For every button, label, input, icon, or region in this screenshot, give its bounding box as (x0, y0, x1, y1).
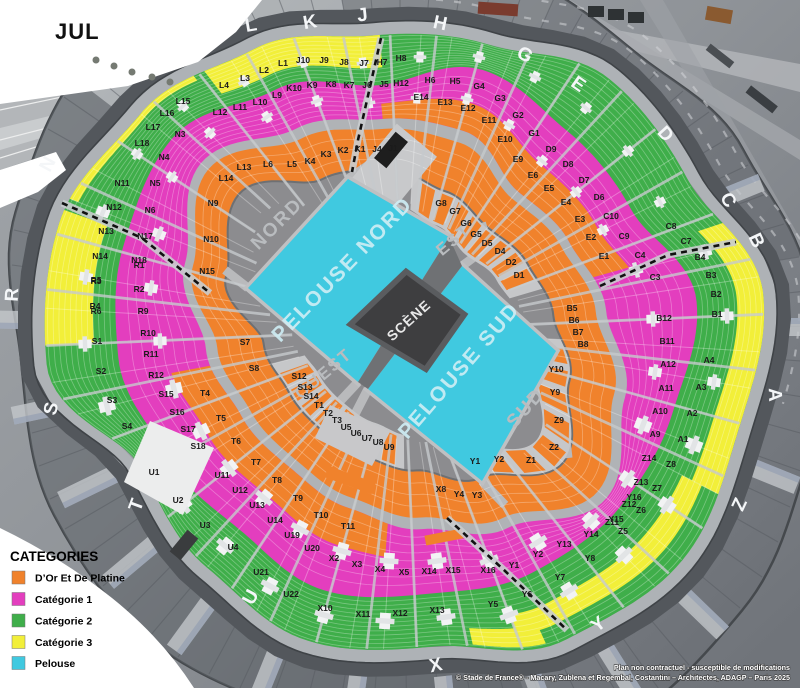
svg-text:L5: L5 (287, 159, 297, 169)
svg-text:N5: N5 (150, 178, 161, 188)
svg-text:A12: A12 (660, 359, 676, 369)
svg-text:A10: A10 (652, 406, 668, 416)
svg-text:R12: R12 (148, 370, 164, 380)
svg-text:T11: T11 (341, 521, 355, 531)
svg-text:U8: U8 (373, 437, 384, 447)
svg-text:Y1: Y1 (509, 560, 520, 570)
svg-text:B8: B8 (578, 339, 589, 349)
svg-text:E6: E6 (528, 170, 539, 180)
svg-text:L10: L10 (253, 97, 268, 107)
svg-text:H6: H6 (425, 75, 436, 85)
svg-text:X11: X11 (356, 609, 371, 619)
svg-text:CATEGORIES: CATEGORIES (10, 549, 98, 564)
svg-text:U9: U9 (384, 442, 395, 452)
svg-text:L13: L13 (237, 162, 252, 172)
svg-text:Pelouse: Pelouse (35, 658, 75, 670)
svg-text:E9: E9 (513, 154, 524, 164)
svg-text:N4: N4 (159, 152, 170, 162)
svg-text:X15: X15 (445, 565, 460, 575)
svg-text:N14: N14 (92, 251, 108, 261)
svg-text:S7: S7 (240, 337, 251, 347)
svg-text:A11: A11 (658, 383, 673, 393)
svg-text:L2: L2 (259, 65, 269, 75)
svg-text:B1: B1 (712, 309, 723, 319)
svg-text:Catégorie 2: Catégorie 2 (35, 616, 92, 628)
svg-text:E13: E13 (437, 97, 452, 107)
svg-text:J5: J5 (379, 79, 389, 89)
svg-text:L18: L18 (135, 138, 150, 148)
svg-text:G1: G1 (528, 128, 540, 138)
svg-text:T8: T8 (272, 475, 282, 485)
svg-text:Catégorie 1: Catégorie 1 (35, 594, 92, 606)
svg-text:E5: E5 (544, 183, 555, 193)
svg-text:E11: E11 (482, 115, 497, 125)
svg-text:S3: S3 (107, 395, 118, 405)
svg-text:JUL: JUL (55, 19, 100, 44)
svg-text:D2: D2 (506, 257, 517, 267)
svg-text:L3: L3 (240, 73, 250, 83)
svg-text:U21: U21 (253, 567, 269, 577)
svg-text:D6: D6 (594, 192, 605, 202)
svg-text:Y14: Y14 (583, 529, 598, 539)
svg-text:N17: N17 (137, 231, 153, 241)
svg-text:Y9: Y9 (550, 387, 561, 397)
svg-text:G2: G2 (512, 110, 524, 120)
svg-text:K3: K3 (321, 149, 332, 159)
svg-text:U14: U14 (267, 515, 283, 525)
svg-text:L9: L9 (272, 90, 282, 100)
svg-text:U12: U12 (232, 485, 248, 495)
svg-text:T4: T4 (200, 388, 210, 398)
svg-text:E3: E3 (575, 214, 586, 224)
svg-text:N11: N11 (114, 178, 129, 188)
svg-text:E14: E14 (413, 92, 428, 102)
svg-text:G3: G3 (494, 93, 506, 103)
svg-text:L14: L14 (219, 173, 234, 183)
svg-text:J8: J8 (339, 57, 349, 67)
svg-text:N12: N12 (106, 202, 122, 212)
svg-text:X2: X2 (329, 553, 340, 563)
svg-text:G6: G6 (460, 218, 472, 228)
svg-text:B2: B2 (711, 289, 722, 299)
svg-text:R2: R2 (134, 284, 145, 294)
svg-text:D7: D7 (579, 175, 590, 185)
svg-text:S2: S2 (96, 366, 107, 376)
svg-text:N15: N15 (199, 266, 215, 276)
svg-text:B5: B5 (567, 303, 578, 313)
svg-text:J9: J9 (319, 55, 329, 65)
svg-text:A4: A4 (704, 355, 715, 365)
svg-text:Y1: Y1 (470, 456, 481, 466)
svg-text:T7: T7 (251, 457, 261, 467)
svg-text:G5: G5 (470, 229, 482, 239)
svg-text:N13: N13 (98, 226, 114, 236)
svg-text:© Stade de France® - Macary, Z: © Stade de France® - Macary, Zublena et … (456, 673, 790, 682)
svg-text:E2: E2 (586, 232, 597, 242)
svg-text:K1: K1 (355, 144, 366, 154)
svg-text:G4: G4 (473, 81, 485, 91)
svg-text:Z5: Z5 (618, 526, 628, 536)
svg-text:D1: D1 (514, 270, 525, 280)
svg-text:Y4: Y4 (454, 489, 465, 499)
svg-text:K10: K10 (286, 83, 302, 93)
svg-text:Z14: Z14 (642, 453, 657, 463)
svg-text:D9: D9 (546, 144, 557, 154)
svg-text:Z7: Z7 (652, 483, 662, 493)
svg-text:U20: U20 (304, 543, 320, 553)
svg-text:D8: D8 (563, 159, 574, 169)
svg-text:A1: A1 (678, 434, 689, 444)
svg-text:L1: L1 (278, 58, 288, 68)
svg-text:X16: X16 (480, 565, 495, 575)
svg-text:L6: L6 (263, 159, 273, 169)
svg-text:A9: A9 (650, 429, 661, 439)
svg-text:S4: S4 (122, 421, 133, 431)
svg-text:U1: U1 (149, 467, 160, 477)
svg-text:S16: S16 (169, 407, 184, 417)
svg-text:C8: C8 (666, 221, 677, 231)
svg-text:Y5: Y5 (488, 599, 499, 609)
svg-text:D4: D4 (495, 246, 506, 256)
svg-text:H5: H5 (450, 76, 461, 86)
svg-text:L15: L15 (176, 96, 191, 106)
svg-text:X5: X5 (399, 567, 410, 577)
svg-text:B4: B4 (695, 252, 706, 262)
svg-text:R11: R11 (143, 349, 158, 359)
svg-text:Z13: Z13 (634, 477, 649, 487)
svg-text:S12: S12 (291, 371, 306, 381)
svg-text:L16: L16 (160, 108, 175, 118)
svg-text:Y2: Y2 (494, 454, 505, 464)
svg-text:Z12: Z12 (622, 499, 637, 509)
svg-text:Z9: Z9 (554, 415, 564, 425)
svg-text:U3: U3 (200, 520, 211, 530)
svg-text:R9: R9 (138, 306, 149, 316)
svg-text:C3: C3 (650, 272, 661, 282)
svg-text:X4: X4 (375, 564, 386, 574)
svg-text:Z1: Z1 (526, 455, 536, 465)
svg-text:B7: B7 (573, 327, 584, 337)
svg-text:Z6: Z6 (636, 505, 646, 515)
svg-text:B3: B3 (706, 270, 717, 280)
svg-text:G8: G8 (435, 198, 447, 208)
svg-text:U19: U19 (284, 530, 300, 540)
svg-text:N6: N6 (145, 205, 156, 215)
svg-text:L17: L17 (146, 122, 161, 132)
svg-text:Catégorie 3: Catégorie 3 (35, 637, 92, 649)
svg-text:J: J (356, 5, 369, 27)
svg-text:E4: E4 (561, 197, 572, 207)
svg-text:S8: S8 (249, 363, 260, 373)
svg-text:J1: J1 (388, 143, 398, 153)
svg-text:N10: N10 (203, 234, 219, 244)
svg-text:E10: E10 (497, 134, 512, 144)
svg-text:E12: E12 (460, 103, 475, 113)
svg-text:U6: U6 (351, 428, 362, 438)
svg-text:Y6: Y6 (522, 589, 533, 599)
svg-text:X10: X10 (317, 603, 332, 613)
svg-text:S18: S18 (190, 441, 205, 451)
svg-text:R5: R5 (91, 275, 102, 285)
svg-text:C7: C7 (681, 236, 692, 246)
svg-text:Y3: Y3 (472, 490, 483, 500)
svg-text:R1: R1 (134, 260, 145, 270)
svg-text:S15: S15 (158, 389, 173, 399)
svg-text:G7: G7 (449, 206, 461, 216)
svg-text:A2: A2 (687, 408, 698, 418)
svg-text:C10: C10 (603, 211, 619, 221)
svg-text:K2: K2 (338, 145, 349, 155)
svg-text:T10: T10 (314, 510, 329, 520)
svg-text:Y7: Y7 (555, 572, 566, 582)
svg-text:L12: L12 (213, 107, 228, 117)
svg-text:X3: X3 (352, 559, 363, 569)
svg-text:U22: U22 (283, 589, 299, 599)
svg-text:Y13: Y13 (556, 539, 571, 549)
svg-text:U2: U2 (173, 495, 184, 505)
svg-text:T6: T6 (231, 436, 241, 446)
svg-text:E1: E1 (599, 251, 610, 261)
svg-text:J6: J6 (362, 80, 372, 90)
svg-text:J7: J7 (359, 58, 369, 68)
svg-text:C9: C9 (619, 231, 630, 241)
svg-text:H12: H12 (393, 78, 409, 88)
svg-text:Y8: Y8 (585, 553, 596, 563)
svg-text:Z2: Z2 (549, 442, 559, 452)
svg-text:R: R (2, 287, 24, 302)
svg-text:U13: U13 (249, 500, 265, 510)
svg-text:X12: X12 (392, 608, 407, 618)
svg-text:K7: K7 (344, 80, 355, 90)
svg-text:H8: H8 (396, 53, 407, 63)
svg-text:T5: T5 (216, 413, 226, 423)
svg-text:C4: C4 (635, 250, 646, 260)
svg-text:Y2: Y2 (533, 549, 544, 559)
svg-text:U11: U11 (214, 470, 229, 480)
svg-text:K8: K8 (326, 79, 337, 89)
svg-text:A: A (764, 388, 785, 403)
svg-text:B6: B6 (569, 315, 580, 325)
svg-text:U4: U4 (228, 542, 239, 552)
svg-text:K4: K4 (305, 156, 316, 166)
svg-text:D5: D5 (482, 238, 493, 248)
svg-text:X13: X13 (429, 605, 444, 615)
svg-text:B12: B12 (656, 313, 672, 323)
svg-text:N9: N9 (208, 198, 219, 208)
svg-text:H7: H7 (377, 57, 388, 67)
svg-text:J4: J4 (372, 144, 382, 154)
svg-text:A3: A3 (696, 382, 707, 392)
svg-text:L4: L4 (219, 80, 229, 90)
svg-text:R6: R6 (91, 306, 102, 316)
svg-text:Z8: Z8 (666, 459, 676, 469)
svg-text:U7: U7 (362, 433, 373, 443)
svg-text:X14: X14 (421, 566, 436, 576)
svg-text:K9: K9 (307, 80, 318, 90)
svg-text:B11: B11 (659, 336, 674, 346)
svg-text:R10: R10 (140, 328, 156, 338)
svg-text:S17: S17 (180, 424, 195, 434)
svg-text:X8: X8 (436, 484, 447, 494)
svg-text:Plan non contractuel - suscept: Plan non contractuel - susceptible de mo… (614, 663, 790, 672)
svg-text:N3: N3 (175, 129, 186, 139)
svg-text:Y10: Y10 (548, 364, 563, 374)
svg-text:T9: T9 (293, 493, 303, 503)
svg-text:S1: S1 (92, 336, 103, 346)
svg-text:J10: J10 (296, 55, 310, 65)
svg-text:L11: L11 (233, 102, 247, 112)
svg-text:D’Or Et De Platine: D’Or Et De Platine (35, 573, 125, 585)
